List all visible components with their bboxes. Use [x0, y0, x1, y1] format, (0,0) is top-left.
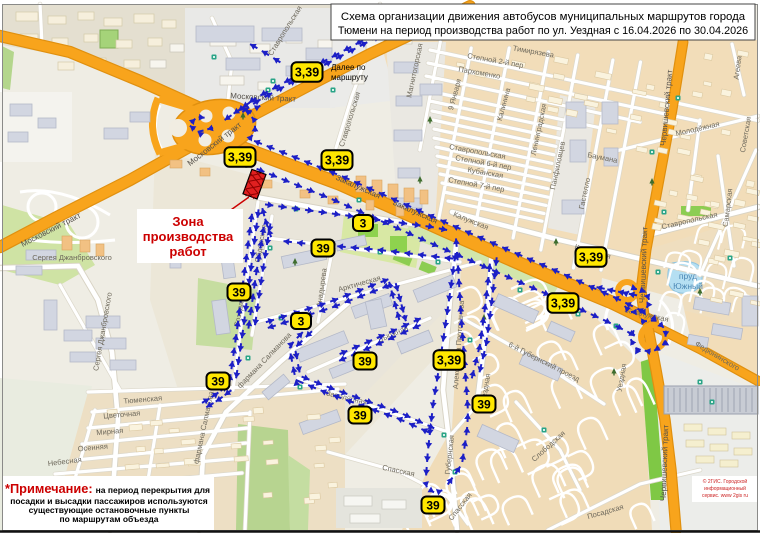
svg-text:Тюмени на период производства: Тюмени на период производства работ по у… [338, 25, 748, 37]
svg-text:3,39: 3,39 [437, 353, 461, 367]
svg-text:производства: производства [143, 229, 234, 244]
svg-text:Южный: Южный [673, 281, 703, 291]
svg-text:Сергея Джанбровского: Сергея Джанбровского [32, 253, 112, 262]
svg-text:3,39: 3,39 [295, 65, 319, 79]
svg-text:39: 39 [316, 241, 330, 255]
svg-text:39: 39 [232, 285, 246, 299]
svg-text:3,39: 3,39 [551, 296, 575, 310]
svg-text:сервис. www 2gis ru: сервис. www 2gis ru [702, 493, 748, 499]
svg-text:© 2ГИС. Городской: © 2ГИС. Городской [703, 478, 748, 485]
svg-text:Схема организации движения авт: Схема организации движения автобусов мун… [341, 11, 746, 23]
svg-text:39: 39 [358, 354, 372, 368]
svg-text:3,39: 3,39 [579, 250, 603, 264]
svg-text:39: 39 [477, 397, 491, 411]
svg-text:3: 3 [360, 216, 367, 230]
svg-text:маршруту: маршруту [331, 73, 368, 82]
svg-text:по маршрутам объезда: по маршрутам объезда [60, 514, 159, 524]
svg-text:Далее по: Далее по [331, 63, 366, 72]
svg-text:информационный: информационный [704, 485, 746, 492]
svg-text:39: 39 [211, 374, 225, 388]
svg-text:работ: работ [169, 244, 206, 259]
svg-text:3,39: 3,39 [228, 150, 252, 164]
svg-text:Зона: Зона [172, 214, 204, 229]
svg-text:3: 3 [298, 314, 305, 328]
svg-text:пруд: пруд [679, 271, 697, 281]
svg-text:39: 39 [426, 498, 440, 512]
svg-text:3,39: 3,39 [325, 153, 349, 167]
svg-text:39: 39 [353, 408, 367, 422]
